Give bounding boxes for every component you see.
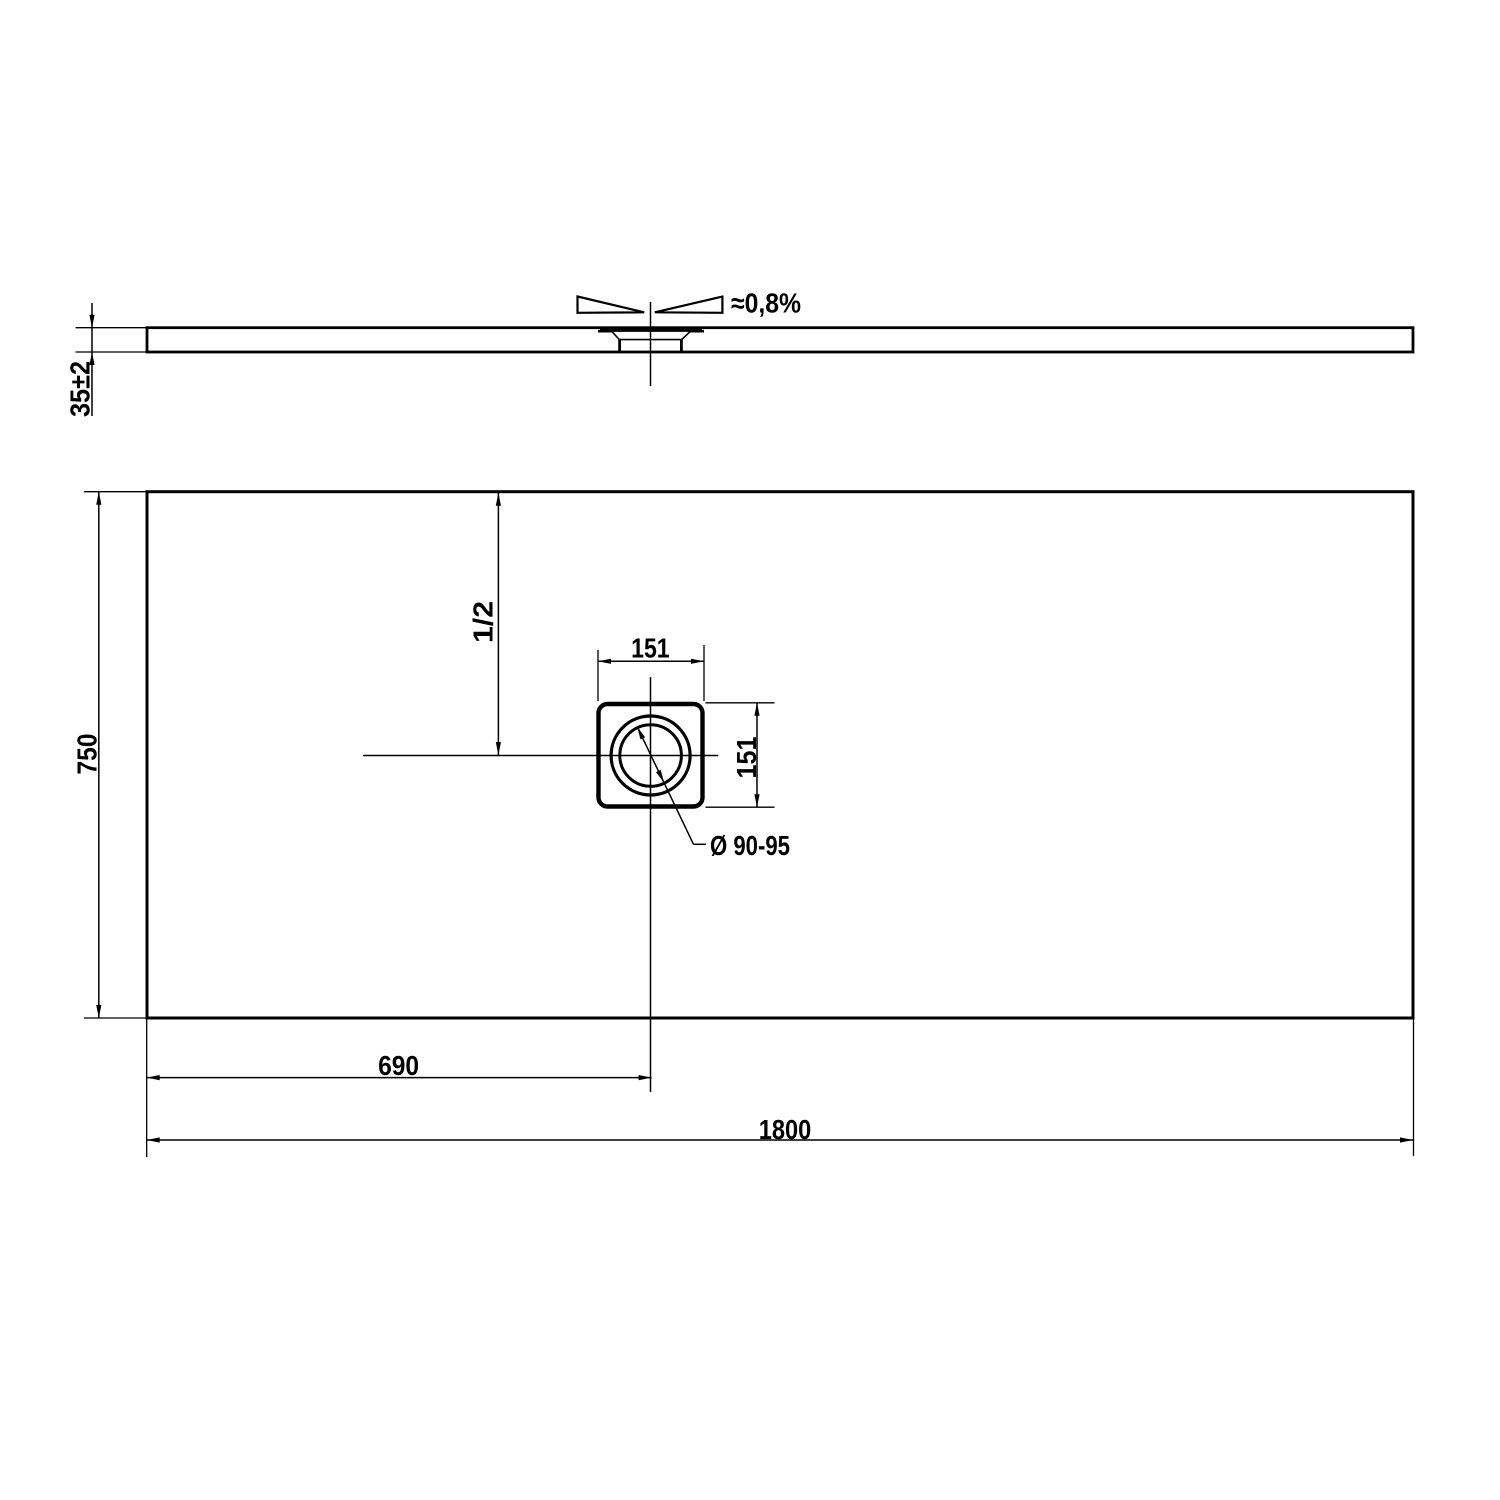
svg-text:≈0,8%: ≈0,8% xyxy=(731,288,801,319)
svg-text:750: 750 xyxy=(71,734,102,775)
svg-text:Ø 90-95: Ø 90-95 xyxy=(710,830,790,861)
svg-text:151: 151 xyxy=(631,633,670,664)
svg-text:35±2: 35±2 xyxy=(65,361,96,417)
svg-text:1/2: 1/2 xyxy=(468,601,499,643)
svg-text:1800: 1800 xyxy=(759,1114,812,1145)
svg-text:151: 151 xyxy=(731,737,762,779)
svg-text:690: 690 xyxy=(378,1050,419,1081)
